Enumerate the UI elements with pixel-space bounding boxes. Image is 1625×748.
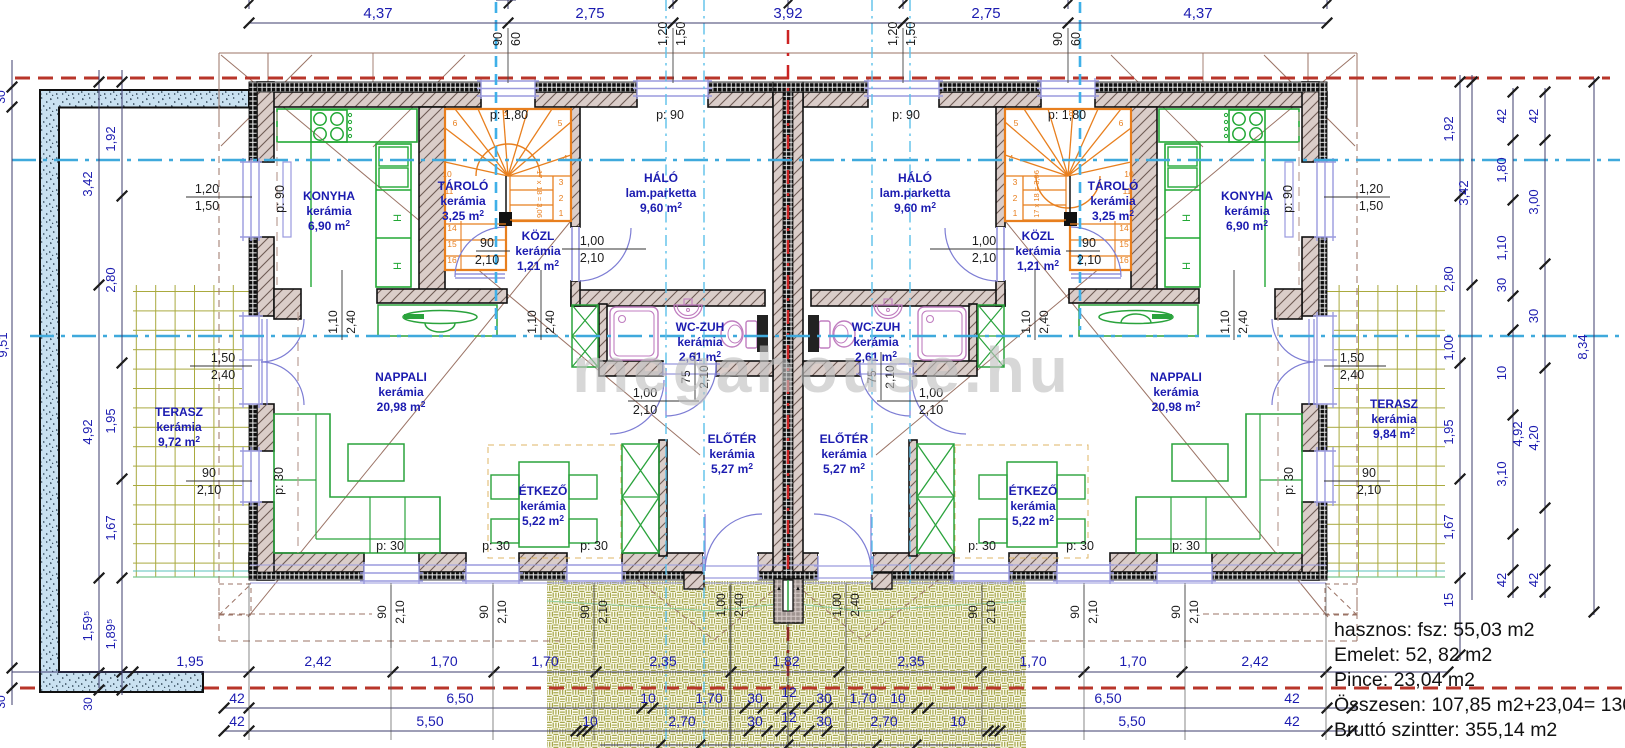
svg-text:90: 90 xyxy=(480,236,494,250)
svg-text:20,98 m2: 20,98 m2 xyxy=(1152,399,1201,414)
svg-text:p: 30: p: 30 xyxy=(482,539,510,553)
svg-text:1,92: 1,92 xyxy=(103,126,118,151)
svg-text:2,40: 2,40 xyxy=(211,368,235,382)
svg-text:1,95: 1,95 xyxy=(1441,419,1456,444)
svg-text:1,95: 1,95 xyxy=(103,408,118,433)
svg-text:TÁROLÓ: TÁROLÓ xyxy=(438,178,489,193)
svg-text:2,40: 2,40 xyxy=(1037,310,1051,334)
svg-text:p: 30: p: 30 xyxy=(968,539,996,553)
svg-text:2,40: 2,40 xyxy=(1340,368,1364,382)
svg-text:kerámia: kerámia xyxy=(378,385,424,399)
svg-text:p: 90: p: 90 xyxy=(273,185,287,213)
svg-text:17 x 18 = 3,06: 17 x 18 = 3,06 xyxy=(535,170,544,218)
svg-text:1,59⁵: 1,59⁵ xyxy=(80,611,95,642)
svg-text:2,10: 2,10 xyxy=(1077,253,1101,267)
svg-text:WC-ZUH: WC-ZUH xyxy=(676,320,725,334)
svg-text:1,10: 1,10 xyxy=(326,310,340,334)
svg-text:5,22 m2: 5,22 m2 xyxy=(522,513,564,528)
svg-text:1,80: 1,80 xyxy=(1494,157,1509,182)
svg-text:42: 42 xyxy=(1526,109,1541,123)
svg-text:WC-ZUH: WC-ZUH xyxy=(852,320,901,334)
svg-text:1,70: 1,70 xyxy=(849,690,876,706)
svg-text:kerámia: kerámia xyxy=(1015,244,1061,258)
svg-text:ÉTKEZŐ: ÉTKEZŐ xyxy=(1009,483,1058,498)
svg-text:30: 30 xyxy=(747,690,763,706)
svg-text:p: 90: p: 90 xyxy=(1281,185,1295,213)
svg-text:2,10: 2,10 xyxy=(984,600,998,624)
svg-text:lam.parketta: lam.parketta xyxy=(880,186,951,200)
svg-text:30: 30 xyxy=(816,690,832,706)
svg-text:10: 10 xyxy=(1124,169,1134,179)
svg-text:kerámia: kerámia xyxy=(709,447,755,461)
svg-text:1,50: 1,50 xyxy=(211,351,235,365)
svg-text:90: 90 xyxy=(1362,466,1376,480)
svg-text:2,10: 2,10 xyxy=(1086,600,1100,624)
svg-text:4,37: 4,37 xyxy=(363,5,392,22)
svg-text:42: 42 xyxy=(1526,573,1541,587)
svg-text:1,21 m2: 1,21 m2 xyxy=(1017,258,1059,273)
svg-text:2,10: 2,10 xyxy=(197,483,221,497)
svg-text:2,35: 2,35 xyxy=(649,653,676,669)
svg-text:9,60 m2: 9,60 m2 xyxy=(894,200,936,215)
svg-text:2,10: 2,10 xyxy=(393,600,407,624)
svg-text:3,10: 3,10 xyxy=(1494,461,1509,486)
svg-text:lam.parketta: lam.parketta xyxy=(626,186,697,200)
svg-text:Pince: 23,04 m2: Pince: 23,04 m2 xyxy=(1334,669,1475,691)
svg-text:1,20: 1,20 xyxy=(886,22,900,46)
svg-text:2: 2 xyxy=(1013,193,1018,203)
svg-text:6: 6 xyxy=(1119,118,1124,128)
svg-text:p: 1,80: p: 1,80 xyxy=(490,108,528,122)
svg-text:90: 90 xyxy=(375,605,389,619)
svg-text:2,10: 2,10 xyxy=(495,600,509,624)
svg-text:2,40: 2,40 xyxy=(1236,310,1250,334)
svg-text:2,35: 2,35 xyxy=(897,653,924,669)
svg-text:2,80: 2,80 xyxy=(103,267,118,292)
svg-text:15: 15 xyxy=(447,239,457,249)
svg-text:20,98 m2: 20,98 m2 xyxy=(377,399,426,414)
svg-text:1,50: 1,50 xyxy=(674,22,688,46)
svg-text:1,10: 1,10 xyxy=(1494,235,1509,260)
svg-text:ELŐTÉR: ELŐTÉR xyxy=(708,431,757,446)
svg-text:1,70: 1,70 xyxy=(1119,653,1146,669)
svg-text:3,00: 3,00 xyxy=(1526,189,1541,214)
svg-text:90: 90 xyxy=(1169,605,1183,619)
svg-text:3: 3 xyxy=(559,177,564,187)
svg-text:9,72 m2: 9,72 m2 xyxy=(158,434,200,449)
svg-text:42: 42 xyxy=(1494,573,1509,587)
svg-text:90: 90 xyxy=(202,466,216,480)
svg-text:3,25 m2: 3,25 m2 xyxy=(1092,208,1134,223)
svg-text:60: 60 xyxy=(509,32,523,46)
svg-text:42: 42 xyxy=(229,713,245,729)
svg-text:10: 10 xyxy=(582,713,598,729)
svg-text:KONYHA: KONYHA xyxy=(1221,189,1273,203)
svg-text:14: 14 xyxy=(1119,223,1129,233)
svg-text:1,50: 1,50 xyxy=(904,22,918,46)
svg-text:KÖZL: KÖZL xyxy=(522,228,555,243)
svg-text:1,20: 1,20 xyxy=(656,22,670,46)
svg-text:6,50: 6,50 xyxy=(1094,690,1121,706)
svg-text:2,10: 2,10 xyxy=(1187,600,1201,624)
svg-text:1,10: 1,10 xyxy=(1218,310,1232,334)
svg-text:p: 30: p: 30 xyxy=(1172,539,1200,553)
svg-text:6: 6 xyxy=(453,118,458,128)
svg-text:kerámia: kerámia xyxy=(1090,194,1136,208)
svg-text:HÁLÓ: HÁLÓ xyxy=(644,170,678,185)
svg-text:1,10: 1,10 xyxy=(1019,310,1033,334)
svg-text:HÁLÓ: HÁLÓ xyxy=(898,170,932,185)
svg-text:90: 90 xyxy=(1051,32,1065,46)
svg-text:▲: ▲ xyxy=(795,586,801,592)
svg-text:kerámia: kerámia xyxy=(440,194,486,208)
svg-text:10: 10 xyxy=(1494,366,1509,380)
svg-text:1: 1 xyxy=(559,208,564,218)
svg-text:Bruttó szintter: 355,14 m2: Bruttó szintter: 355,14 m2 xyxy=(1334,719,1557,741)
svg-text:kerámia: kerámia xyxy=(821,447,867,461)
svg-text:15: 15 xyxy=(1441,593,1456,607)
svg-text:4: 4 xyxy=(563,153,568,163)
svg-text:1,00: 1,00 xyxy=(830,593,844,617)
svg-text:1,10: 1,10 xyxy=(525,310,539,334)
svg-text:90: 90 xyxy=(1068,605,1082,619)
svg-text:2,10: 2,10 xyxy=(580,251,604,265)
svg-text:5: 5 xyxy=(558,118,563,128)
svg-text:1,67: 1,67 xyxy=(103,515,118,540)
svg-text:3,25 m2: 3,25 m2 xyxy=(442,208,484,223)
svg-text:5,50: 5,50 xyxy=(416,713,443,729)
svg-text:2,40: 2,40 xyxy=(543,310,557,334)
svg-text:1,00: 1,00 xyxy=(1441,335,1456,360)
svg-text:9,60 m2: 9,60 m2 xyxy=(640,200,682,215)
svg-text:3,42: 3,42 xyxy=(80,171,95,196)
svg-text:42: 42 xyxy=(1284,690,1300,706)
svg-text:90: 90 xyxy=(477,605,491,619)
svg-text:TÁROLÓ: TÁROLÓ xyxy=(1088,178,1139,193)
svg-text:30: 30 xyxy=(0,90,8,104)
svg-text:6,90 m2: 6,90 m2 xyxy=(308,218,350,233)
svg-text:12: 12 xyxy=(781,709,797,725)
svg-text:KONYHA: KONYHA xyxy=(303,189,355,203)
svg-text:60: 60 xyxy=(1069,32,1083,46)
svg-text:kerámia: kerámia xyxy=(520,499,566,513)
svg-text:15: 15 xyxy=(1119,239,1129,249)
svg-text:kerámia: kerámia xyxy=(1224,204,1270,218)
svg-text:8,34: 8,34 xyxy=(1575,334,1590,359)
svg-text:p: 30: p: 30 xyxy=(580,539,608,553)
svg-text:10: 10 xyxy=(950,713,966,729)
svg-text:2,70: 2,70 xyxy=(870,713,897,729)
svg-text:90: 90 xyxy=(578,605,592,619)
svg-text:kerámia: kerámia xyxy=(1010,499,1056,513)
svg-text:1,89⁵: 1,89⁵ xyxy=(103,619,118,650)
svg-text:p: 90: p: 90 xyxy=(892,108,920,122)
svg-text:Emelet: 52, 82 m2: Emelet: 52, 82 m2 xyxy=(1334,644,1492,666)
svg-text:1,50: 1,50 xyxy=(1340,351,1364,365)
svg-text:4,92: 4,92 xyxy=(80,419,95,444)
svg-text:1,00: 1,00 xyxy=(580,234,604,248)
svg-text:1,00: 1,00 xyxy=(714,593,728,617)
svg-text:1,70: 1,70 xyxy=(430,653,457,669)
svg-text:9,51: 9,51 xyxy=(0,332,10,357)
svg-text:Összesen: 107,85 m2+23,04= 130: Összesen: 107,85 m2+23,04= 130,89 m2 xyxy=(1334,694,1625,716)
svg-text:kerámia: kerámia xyxy=(1153,385,1199,399)
svg-text:2,80: 2,80 xyxy=(1441,266,1456,291)
svg-text:17 x 18 = 3,06: 17 x 18 = 3,06 xyxy=(1032,170,1041,218)
svg-text:kerámia: kerámia xyxy=(156,420,202,434)
svg-text:1,21 m2: 1,21 m2 xyxy=(517,258,559,273)
svg-text:16: 16 xyxy=(1119,255,1129,265)
svg-text:2: 2 xyxy=(559,193,564,203)
svg-text:1,00: 1,00 xyxy=(972,234,996,248)
svg-text:p: 30: p: 30 xyxy=(1282,467,1296,495)
svg-text:90: 90 xyxy=(491,32,505,46)
svg-text:30: 30 xyxy=(81,697,95,711)
svg-text:kerámia: kerámia xyxy=(1371,412,1417,426)
svg-text:5,50: 5,50 xyxy=(1118,713,1145,729)
svg-text:TERASZ: TERASZ xyxy=(1370,397,1418,411)
svg-text:1,70: 1,70 xyxy=(695,690,722,706)
svg-text:3,42: 3,42 xyxy=(1456,180,1471,205)
svg-text:kerámia: kerámia xyxy=(515,244,561,258)
svg-text:3: 3 xyxy=(1013,177,1018,187)
svg-text:H: H xyxy=(391,214,403,222)
svg-text:NAPPALI: NAPPALI xyxy=(375,370,427,384)
svg-text:2,70: 2,70 xyxy=(668,713,695,729)
svg-text:2,40: 2,40 xyxy=(344,310,358,334)
svg-text:1,50: 1,50 xyxy=(195,199,219,213)
svg-text:30: 30 xyxy=(747,713,763,729)
svg-text:ÉTKEZŐ: ÉTKEZŐ xyxy=(519,483,568,498)
svg-text:p: 30: p: 30 xyxy=(1066,539,1094,553)
svg-text:30: 30 xyxy=(1526,309,1541,323)
svg-text:ELŐTÉR: ELŐTÉR xyxy=(820,431,869,446)
svg-text:42: 42 xyxy=(229,690,245,706)
svg-text:5,22 m2: 5,22 m2 xyxy=(1012,513,1054,528)
svg-text:p: 1,80: p: 1,80 xyxy=(1048,108,1086,122)
svg-text:megahouse.hu: megahouse.hu xyxy=(572,334,1072,406)
svg-text:10: 10 xyxy=(640,690,656,706)
svg-text:H: H xyxy=(1180,214,1192,222)
svg-text:TERASZ: TERASZ xyxy=(155,405,203,419)
svg-text:NAPPALI: NAPPALI xyxy=(1150,370,1202,384)
svg-text:90: 90 xyxy=(1082,236,1096,250)
svg-text:1,92: 1,92 xyxy=(1441,116,1456,141)
svg-text:4,92: 4,92 xyxy=(1510,421,1525,446)
svg-text:90: 90 xyxy=(966,605,980,619)
svg-text:2,10: 2,10 xyxy=(596,600,610,624)
svg-text:5: 5 xyxy=(1014,118,1019,128)
svg-text:▲: ▲ xyxy=(776,586,782,592)
svg-text:1,20: 1,20 xyxy=(1359,182,1383,196)
svg-text:5,27 m2: 5,27 m2 xyxy=(823,461,865,476)
svg-text:30: 30 xyxy=(1494,278,1509,292)
svg-text:1,70: 1,70 xyxy=(1019,653,1046,669)
svg-text:1,67: 1,67 xyxy=(1441,514,1456,539)
svg-text:p: 90: p: 90 xyxy=(656,108,684,122)
svg-text:p: 30: p: 30 xyxy=(376,539,404,553)
svg-text:2,42: 2,42 xyxy=(1241,653,1268,669)
svg-text:14: 14 xyxy=(447,223,457,233)
svg-text:2,42: 2,42 xyxy=(304,653,331,669)
svg-text:10: 10 xyxy=(442,169,452,179)
svg-text:1,70: 1,70 xyxy=(531,653,558,669)
svg-text:1,20: 1,20 xyxy=(195,182,219,196)
svg-text:2,10: 2,10 xyxy=(475,253,499,267)
svg-text:H: H xyxy=(1180,262,1192,270)
svg-text:4,37: 4,37 xyxy=(1183,5,1212,22)
svg-text:42: 42 xyxy=(1284,713,1300,729)
svg-text:hasznos: fsz: 55,03 m2: hasznos: fsz: 55,03 m2 xyxy=(1334,619,1535,641)
svg-text:1,82: 1,82 xyxy=(772,653,799,669)
svg-text:6,90 m2: 6,90 m2 xyxy=(1226,218,1268,233)
svg-text:5,27 m2: 5,27 m2 xyxy=(711,461,753,476)
svg-text:2,75: 2,75 xyxy=(971,5,1000,22)
svg-text:4,20: 4,20 xyxy=(1526,425,1541,450)
svg-text:2,75: 2,75 xyxy=(575,5,604,22)
svg-text:30: 30 xyxy=(816,713,832,729)
svg-text:10: 10 xyxy=(890,690,906,706)
svg-text:9,84 m2: 9,84 m2 xyxy=(1373,426,1415,441)
svg-text:kerámia: kerámia xyxy=(306,204,352,218)
svg-text:p: 30: p: 30 xyxy=(272,467,286,495)
svg-text:1: 1 xyxy=(1013,208,1018,218)
svg-text:KÖZL: KÖZL xyxy=(1022,228,1055,243)
svg-text:1,95: 1,95 xyxy=(176,653,203,669)
svg-text:30: 30 xyxy=(0,695,8,709)
svg-text:2,10: 2,10 xyxy=(972,251,996,265)
svg-text:1,50: 1,50 xyxy=(1359,199,1383,213)
svg-text:12: 12 xyxy=(781,684,797,700)
svg-text:2,40: 2,40 xyxy=(732,593,746,617)
svg-text:16: 16 xyxy=(447,255,457,265)
svg-text:2,10: 2,10 xyxy=(1357,483,1381,497)
svg-text:6,50: 6,50 xyxy=(446,690,473,706)
svg-text:2,40: 2,40 xyxy=(848,593,862,617)
svg-text:42: 42 xyxy=(1494,109,1509,123)
svg-text:4: 4 xyxy=(1009,153,1014,163)
svg-text:H: H xyxy=(391,262,403,270)
